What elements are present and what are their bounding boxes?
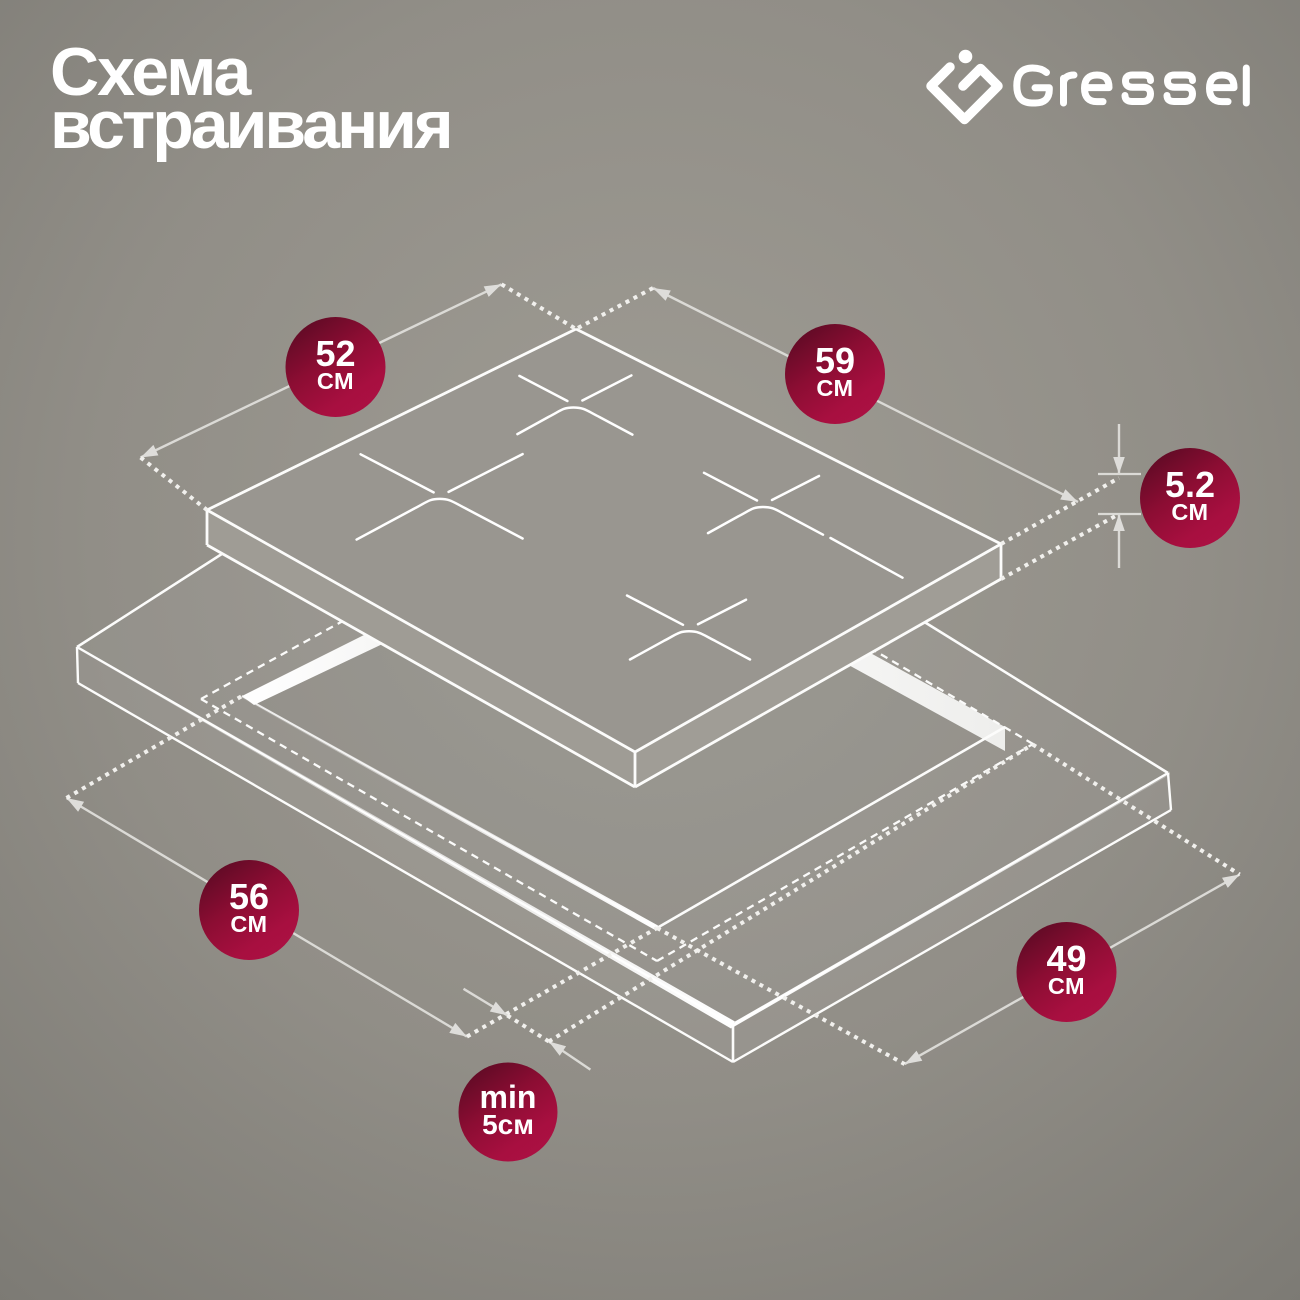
svg-text:СМ: СМ	[816, 375, 853, 401]
svg-text:5см: 5см	[482, 1109, 534, 1140]
svg-text:СМ: СМ	[1048, 973, 1085, 999]
svg-text:СМ: СМ	[317, 368, 354, 394]
svg-text:СМ: СМ	[1171, 499, 1208, 525]
svg-text:встраивания: встраивания	[50, 87, 451, 163]
svg-text:СМ: СМ	[230, 911, 267, 937]
